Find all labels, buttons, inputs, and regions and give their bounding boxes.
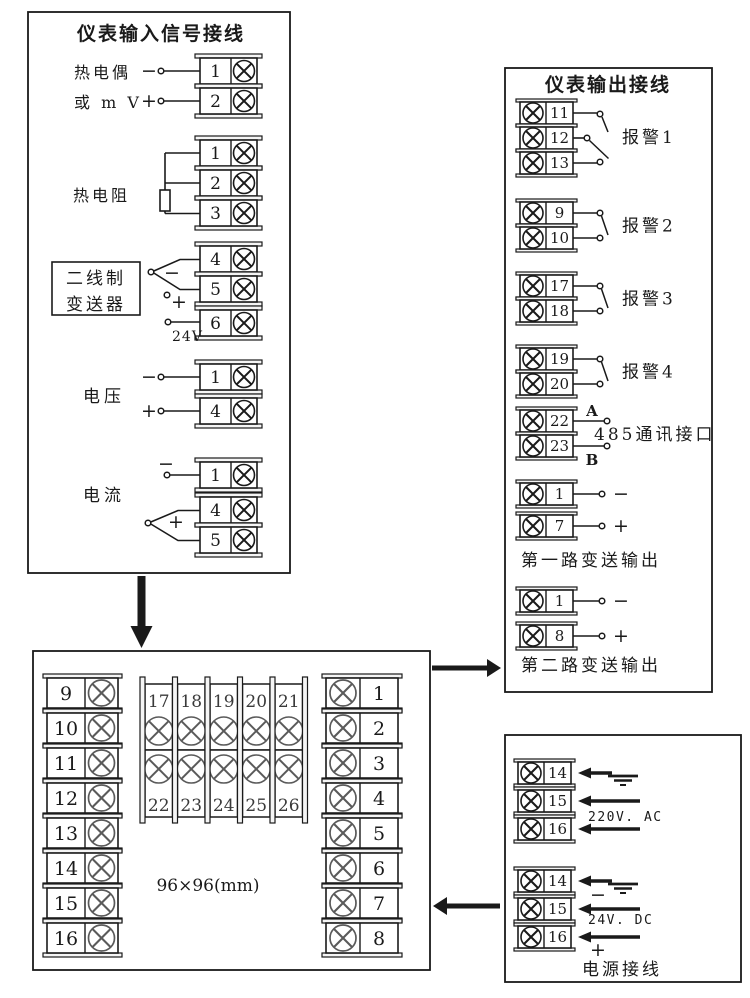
screw-terminal-icon xyxy=(521,791,541,811)
alarm2-group: 910报警2 xyxy=(516,199,676,252)
strip-rail xyxy=(303,677,308,823)
screw-terminal-icon xyxy=(242,717,270,745)
terminal-number: 20 xyxy=(245,692,267,712)
screw-terminal-icon xyxy=(234,61,255,82)
connection-node xyxy=(145,520,151,526)
voltage-label: 电压 xyxy=(83,387,125,407)
rtd-resistor-icon xyxy=(160,190,170,211)
connection-node xyxy=(158,68,164,74)
alarm3-label: 报警3 xyxy=(622,290,676,310)
terminal-layout-box: 9101112131415161234567817221823192420252… xyxy=(33,651,430,970)
screw-terminal-icon xyxy=(177,755,205,783)
terminal-number: 15 xyxy=(548,900,567,918)
screw-terminal-icon xyxy=(330,925,356,951)
plus-sign: + xyxy=(141,90,157,112)
middle-terminal-strip: 17221823192420252126 xyxy=(140,677,308,823)
terminal-number: 11 xyxy=(550,104,569,122)
mv-label: 或 m V xyxy=(74,93,142,112)
terminal-block: 123 xyxy=(195,136,262,230)
rs485-a-label: A xyxy=(585,402,598,420)
alarm4-label: 报警4 xyxy=(622,363,676,383)
connection-node xyxy=(165,319,171,325)
minus-sign: − xyxy=(141,60,157,82)
screw-terminal-icon xyxy=(177,717,205,745)
transmitter-label-line2: 变送器 xyxy=(66,295,126,315)
terminal-number: 12 xyxy=(54,788,78,810)
wire xyxy=(590,141,609,159)
screw-terminal-icon xyxy=(523,276,543,296)
screw-terminal-icon xyxy=(89,890,115,916)
supply-24v-label: 24V xyxy=(172,329,203,345)
terminal-number: 3 xyxy=(373,753,385,775)
strip-rail xyxy=(140,677,145,823)
screw-terminal-icon xyxy=(523,591,543,611)
terminal-block: 111213 xyxy=(516,99,577,177)
comm-485-group: 2223AB485通讯接口 xyxy=(516,402,715,469)
screw-terminal-icon xyxy=(234,401,255,422)
minus-sign: − xyxy=(141,366,157,388)
terminal-block: 1 xyxy=(516,587,577,615)
terminal-number: 16 xyxy=(548,928,567,946)
strip-rail xyxy=(270,677,275,823)
rs485-b-label: B xyxy=(586,451,599,469)
terminal-number: 2 xyxy=(210,92,221,112)
connection-node xyxy=(597,111,603,117)
screw-terminal-icon xyxy=(523,228,543,248)
connection-node xyxy=(597,356,603,362)
screw-terminal-icon xyxy=(330,715,356,741)
terminal-number: 7 xyxy=(373,893,385,915)
alarm4-group: 1920报警4 xyxy=(516,345,676,398)
connection-node xyxy=(597,308,603,314)
terminal-number: 3 xyxy=(210,204,221,224)
terminal-number: 10 xyxy=(550,229,569,247)
power-box-title: 电源接线 xyxy=(582,960,662,980)
arrow-right-layout-to-output xyxy=(432,659,501,677)
terminal-number: 5 xyxy=(373,823,385,845)
minus-sign: − xyxy=(590,884,606,906)
connection-node xyxy=(604,418,610,424)
terminal-number: 12 xyxy=(550,129,569,147)
current-group: 145−+电流 xyxy=(83,453,262,557)
earth-ground-icon xyxy=(608,884,638,893)
terminal-block: 6 xyxy=(195,306,262,340)
screw-terminal-icon xyxy=(234,530,255,551)
screw-terminal-icon xyxy=(275,755,303,783)
terminal-number: 2 xyxy=(373,718,385,740)
terminal-number: 1 xyxy=(555,592,565,610)
terminal-number: 4 xyxy=(210,501,221,521)
terminal-number: 20 xyxy=(550,375,569,393)
terminal-number: 25 xyxy=(245,796,267,816)
rtd-group: 123热电阻 xyxy=(73,136,262,230)
arrowhead-left xyxy=(578,768,591,779)
screw-terminal-icon xyxy=(523,128,543,148)
connection-node xyxy=(597,159,603,165)
thermocouple-label: 热电偶 xyxy=(74,63,131,82)
screw-terminal-icon xyxy=(242,755,270,783)
connection-node xyxy=(597,235,603,241)
minus-sign: − xyxy=(613,483,629,505)
screw-terminal-icon xyxy=(523,374,543,394)
voltage-group: 14−+电压 xyxy=(83,360,262,428)
terminal-number: 13 xyxy=(54,823,78,845)
terminal-number: 8 xyxy=(555,627,565,645)
connection-node xyxy=(599,633,605,639)
screw-terminal-icon xyxy=(210,717,238,745)
screw-terminal-icon xyxy=(145,717,173,745)
terminal-number: 2 xyxy=(210,174,221,194)
screw-terminal-icon xyxy=(521,899,541,919)
terminal-number: 1 xyxy=(210,368,221,388)
screw-terminal-icon xyxy=(523,203,543,223)
arrow-down-input-to-layout xyxy=(131,576,153,648)
screw-terminal-icon xyxy=(521,871,541,891)
terminal-number: 9 xyxy=(555,204,565,222)
terminal-number: 14 xyxy=(548,872,567,890)
arrowhead-left xyxy=(578,796,591,807)
screw-terminal-icon xyxy=(89,715,115,741)
terminal-block: 1 xyxy=(516,480,577,508)
instrument-wiring-diagram: 仪表输入信号接线12−+热电偶或 m V123热电阻456二线制变送器−+24V… xyxy=(0,0,750,998)
terminal-number: 1 xyxy=(555,485,565,503)
screw-terminal-icon xyxy=(523,349,543,369)
connection-node xyxy=(148,269,154,275)
connection-node xyxy=(599,523,605,529)
terminal-block: 1 xyxy=(195,360,262,394)
screw-terminal-icon xyxy=(330,750,356,776)
rtd-label: 热电阻 xyxy=(73,186,130,205)
terminal-number: 6 xyxy=(373,858,385,880)
terminal-number: 4 xyxy=(373,788,385,810)
minus-sign: − xyxy=(158,453,174,475)
screw-terminal-icon xyxy=(234,279,255,300)
screw-terminal-icon xyxy=(89,750,115,776)
connection-node xyxy=(599,491,605,497)
strip-rail xyxy=(205,677,210,823)
terminal-number: 7 xyxy=(555,517,565,535)
screw-terminal-icon xyxy=(523,626,543,646)
thermocouple-group: 12−+热电偶或 m V xyxy=(74,54,262,118)
arrowhead-left xyxy=(578,824,591,835)
terminal-block: 2223 xyxy=(516,407,577,460)
terminal-number: 26 xyxy=(278,796,300,816)
screw-terminal-icon xyxy=(523,411,543,431)
screw-terminal-icon xyxy=(521,763,541,783)
terminal-number: 15 xyxy=(548,792,567,810)
minus-sign: − xyxy=(164,262,180,284)
ac-voltage-label: 220V. AC xyxy=(588,810,663,825)
terminal-block: 12345678 xyxy=(322,674,402,957)
terminal-number: 22 xyxy=(550,412,569,430)
terminal-number: 16 xyxy=(548,820,567,838)
terminal-number: 22 xyxy=(148,796,170,816)
screw-terminal-icon xyxy=(234,313,255,334)
screw-terminal-icon xyxy=(330,890,356,916)
terminal-block: 1 xyxy=(195,458,262,492)
screw-terminal-icon xyxy=(521,927,541,947)
terminal-number: 4 xyxy=(210,250,221,270)
screw-terminal-icon xyxy=(234,500,255,521)
terminal-block: 8 xyxy=(516,622,577,650)
output-box: 仪表输出接线111213报警1910报警21718报警31920报警42223A… xyxy=(505,68,715,692)
terminal-number: 9 xyxy=(60,683,72,705)
transmitter-group: 456二线制变送器−+24V xyxy=(52,242,262,345)
connection-node xyxy=(158,408,164,414)
terminal-number: 8 xyxy=(373,928,385,950)
screw-terminal-icon xyxy=(234,173,255,194)
transmit-output-1-label: 第一路变送输出 xyxy=(521,551,661,571)
wiring-diagram-page: 仪表输入信号接线12−+热电偶或 m V123热电阻456二线制变送器−+24V… xyxy=(0,0,750,998)
screw-terminal-icon xyxy=(275,717,303,745)
terminal-block: 141516 xyxy=(514,867,575,951)
screw-terminal-icon xyxy=(330,855,356,881)
screw-terminal-icon xyxy=(89,785,115,811)
terminal-number: 23 xyxy=(550,437,569,455)
terminal-number: 1 xyxy=(373,683,385,705)
terminal-number: 21 xyxy=(278,692,300,712)
earth-ground-icon xyxy=(608,776,638,785)
terminal-number: 18 xyxy=(180,692,202,712)
plus-sign: + xyxy=(168,511,184,533)
terminal-number: 18 xyxy=(550,302,569,320)
screw-terminal-icon xyxy=(330,680,356,706)
connection-node xyxy=(597,283,603,289)
terminal-number: 13 xyxy=(550,154,569,172)
terminal-number: 5 xyxy=(210,531,221,551)
plus-sign: + xyxy=(613,625,629,647)
screw-terminal-icon xyxy=(234,143,255,164)
plus-sign: + xyxy=(590,939,606,961)
screw-terminal-icon xyxy=(89,855,115,881)
input-box-title: 仪表输入信号接线 xyxy=(76,22,245,45)
screw-terminal-icon xyxy=(523,484,543,504)
terminal-number: 14 xyxy=(548,764,567,782)
terminal-number: 17 xyxy=(550,277,569,295)
terminal-block: 1718 xyxy=(516,272,577,325)
terminal-block: 1920 xyxy=(516,345,577,398)
dc-power-group: 141516−+24V. DC xyxy=(514,867,653,961)
output-box-title: 仪表输出接线 xyxy=(544,73,671,96)
terminal-number: 1 xyxy=(210,466,221,486)
screw-terminal-icon xyxy=(521,819,541,839)
screw-terminal-icon xyxy=(89,820,115,846)
terminal-number: 4 xyxy=(210,402,221,422)
screw-terminal-icon xyxy=(523,516,543,536)
minus-sign: − xyxy=(613,590,629,612)
screw-terminal-icon xyxy=(234,203,255,224)
alarm2-label: 报警2 xyxy=(622,217,676,237)
comm-485-label: 485通讯接口 xyxy=(594,425,715,445)
alarm3-group: 1718报警3 xyxy=(516,272,676,325)
terminal-block: 910 xyxy=(516,199,577,252)
power-box: 电源接线141516220V. AC141516−+24V. DC xyxy=(505,735,741,982)
terminal-number: 19 xyxy=(213,692,235,712)
terminal-number: 14 xyxy=(54,858,78,880)
wire xyxy=(602,362,609,381)
screw-terminal-icon xyxy=(234,367,255,388)
input-signal-box: 仪表输入信号接线12−+热电偶或 m V123热电阻456二线制变送器−+24V… xyxy=(28,12,290,573)
terminal-block: 45 xyxy=(195,493,262,557)
transmitter-label-line1: 二线制 xyxy=(66,269,126,289)
terminal-block: 141516 xyxy=(514,759,575,843)
connection-node xyxy=(158,374,164,380)
screw-terminal-icon xyxy=(234,91,255,112)
current-label: 电流 xyxy=(83,486,125,506)
transmit-output-1-group: 17−+第一路变送输出 xyxy=(516,480,661,571)
screw-terminal-icon xyxy=(523,301,543,321)
terminal-number: 19 xyxy=(550,350,569,368)
panel-size-label: 96×96(mm) xyxy=(156,876,259,896)
plus-sign: + xyxy=(141,400,157,422)
connection-node xyxy=(599,598,605,604)
terminal-number: 6 xyxy=(210,314,221,334)
strip-rail xyxy=(173,677,178,823)
screw-terminal-icon xyxy=(210,755,238,783)
connection-node xyxy=(597,210,603,216)
screw-terminal-icon xyxy=(234,249,255,270)
terminal-number: 15 xyxy=(54,893,78,915)
terminal-block: 4 xyxy=(195,394,262,428)
connection-node xyxy=(164,292,170,298)
alarm1-group: 111213报警1 xyxy=(516,99,676,177)
transmit-output-2-label: 第二路变送输出 xyxy=(521,656,661,676)
screw-terminal-icon xyxy=(234,465,255,486)
wire xyxy=(602,216,609,235)
terminal-number: 5 xyxy=(210,280,221,300)
screw-terminal-icon xyxy=(89,680,115,706)
terminal-number: 16 xyxy=(54,928,78,950)
screw-terminal-icon xyxy=(89,925,115,951)
wire xyxy=(602,117,608,132)
terminal-block: 910111213141516 xyxy=(43,674,122,957)
terminal-number: 24 xyxy=(213,796,235,816)
strip-rail xyxy=(238,677,243,823)
terminal-number: 17 xyxy=(148,692,170,712)
terminal-number: 23 xyxy=(180,796,202,816)
screw-terminal-icon xyxy=(330,820,356,846)
screw-terminal-icon xyxy=(523,103,543,123)
connection-node xyxy=(597,381,603,387)
terminal-block: 45 xyxy=(195,242,262,306)
terminal-number: 1 xyxy=(210,144,221,164)
plus-sign: + xyxy=(613,515,629,537)
terminal-number: 10 xyxy=(54,718,78,740)
dc-voltage-label: 24V. DC xyxy=(588,913,653,928)
wire xyxy=(602,289,609,308)
ac-power-group: 141516220V. AC xyxy=(514,759,663,843)
alarm1-label: 报警1 xyxy=(622,128,676,148)
screw-terminal-icon xyxy=(330,785,356,811)
transmit-output-2-group: 18−+第二路变送输出 xyxy=(516,587,661,676)
terminal-number: 11 xyxy=(54,753,78,775)
terminal-block: 12 xyxy=(195,54,262,118)
plus-sign: + xyxy=(171,291,187,313)
screw-terminal-icon xyxy=(523,436,543,456)
arrow-left-power-to-layout xyxy=(433,897,500,915)
terminal-block: 7 xyxy=(516,512,577,540)
screw-terminal-icon xyxy=(145,755,173,783)
terminal-number: 1 xyxy=(210,62,221,82)
screw-terminal-icon xyxy=(523,153,543,173)
connection-node xyxy=(584,135,590,141)
connection-node xyxy=(158,98,164,104)
